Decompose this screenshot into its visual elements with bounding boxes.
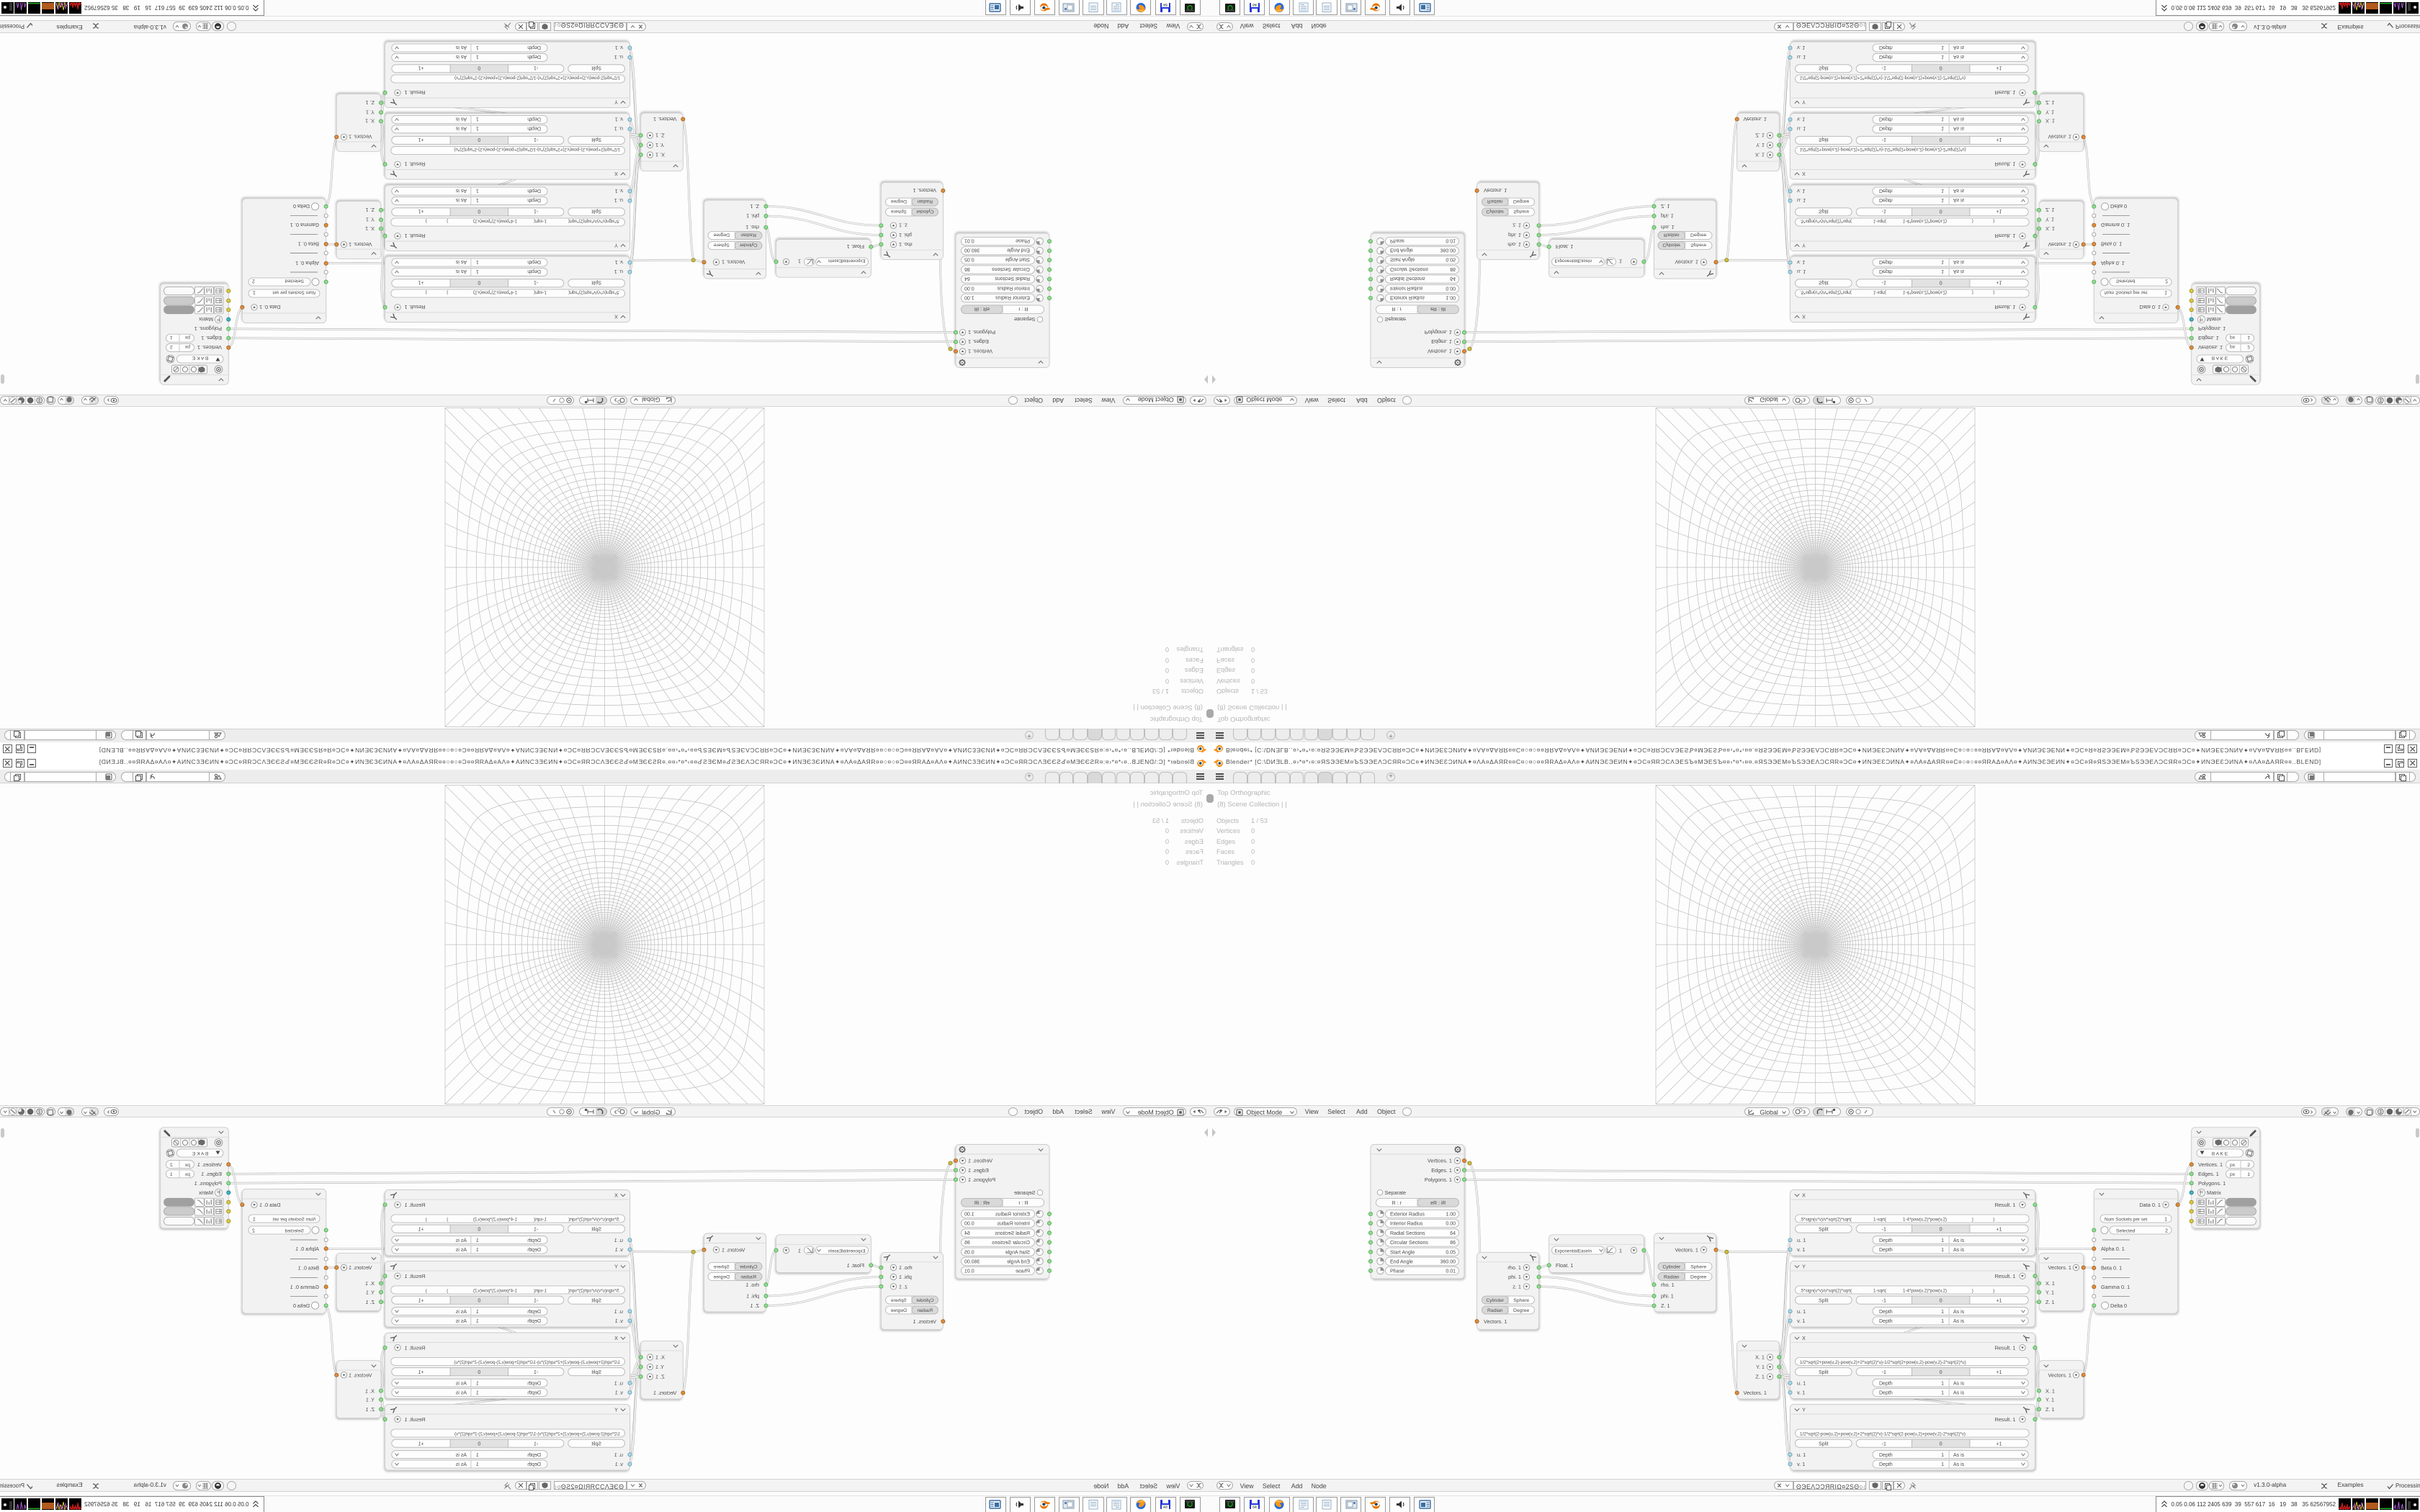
svg-text:64: 64 — [1163, 1506, 1168, 1510]
svg-text:64: 64 — [1252, 1506, 1257, 1510]
svg-text:64: 64 — [1252, 2, 1257, 6]
svg-text:64: 64 — [1163, 2, 1168, 6]
